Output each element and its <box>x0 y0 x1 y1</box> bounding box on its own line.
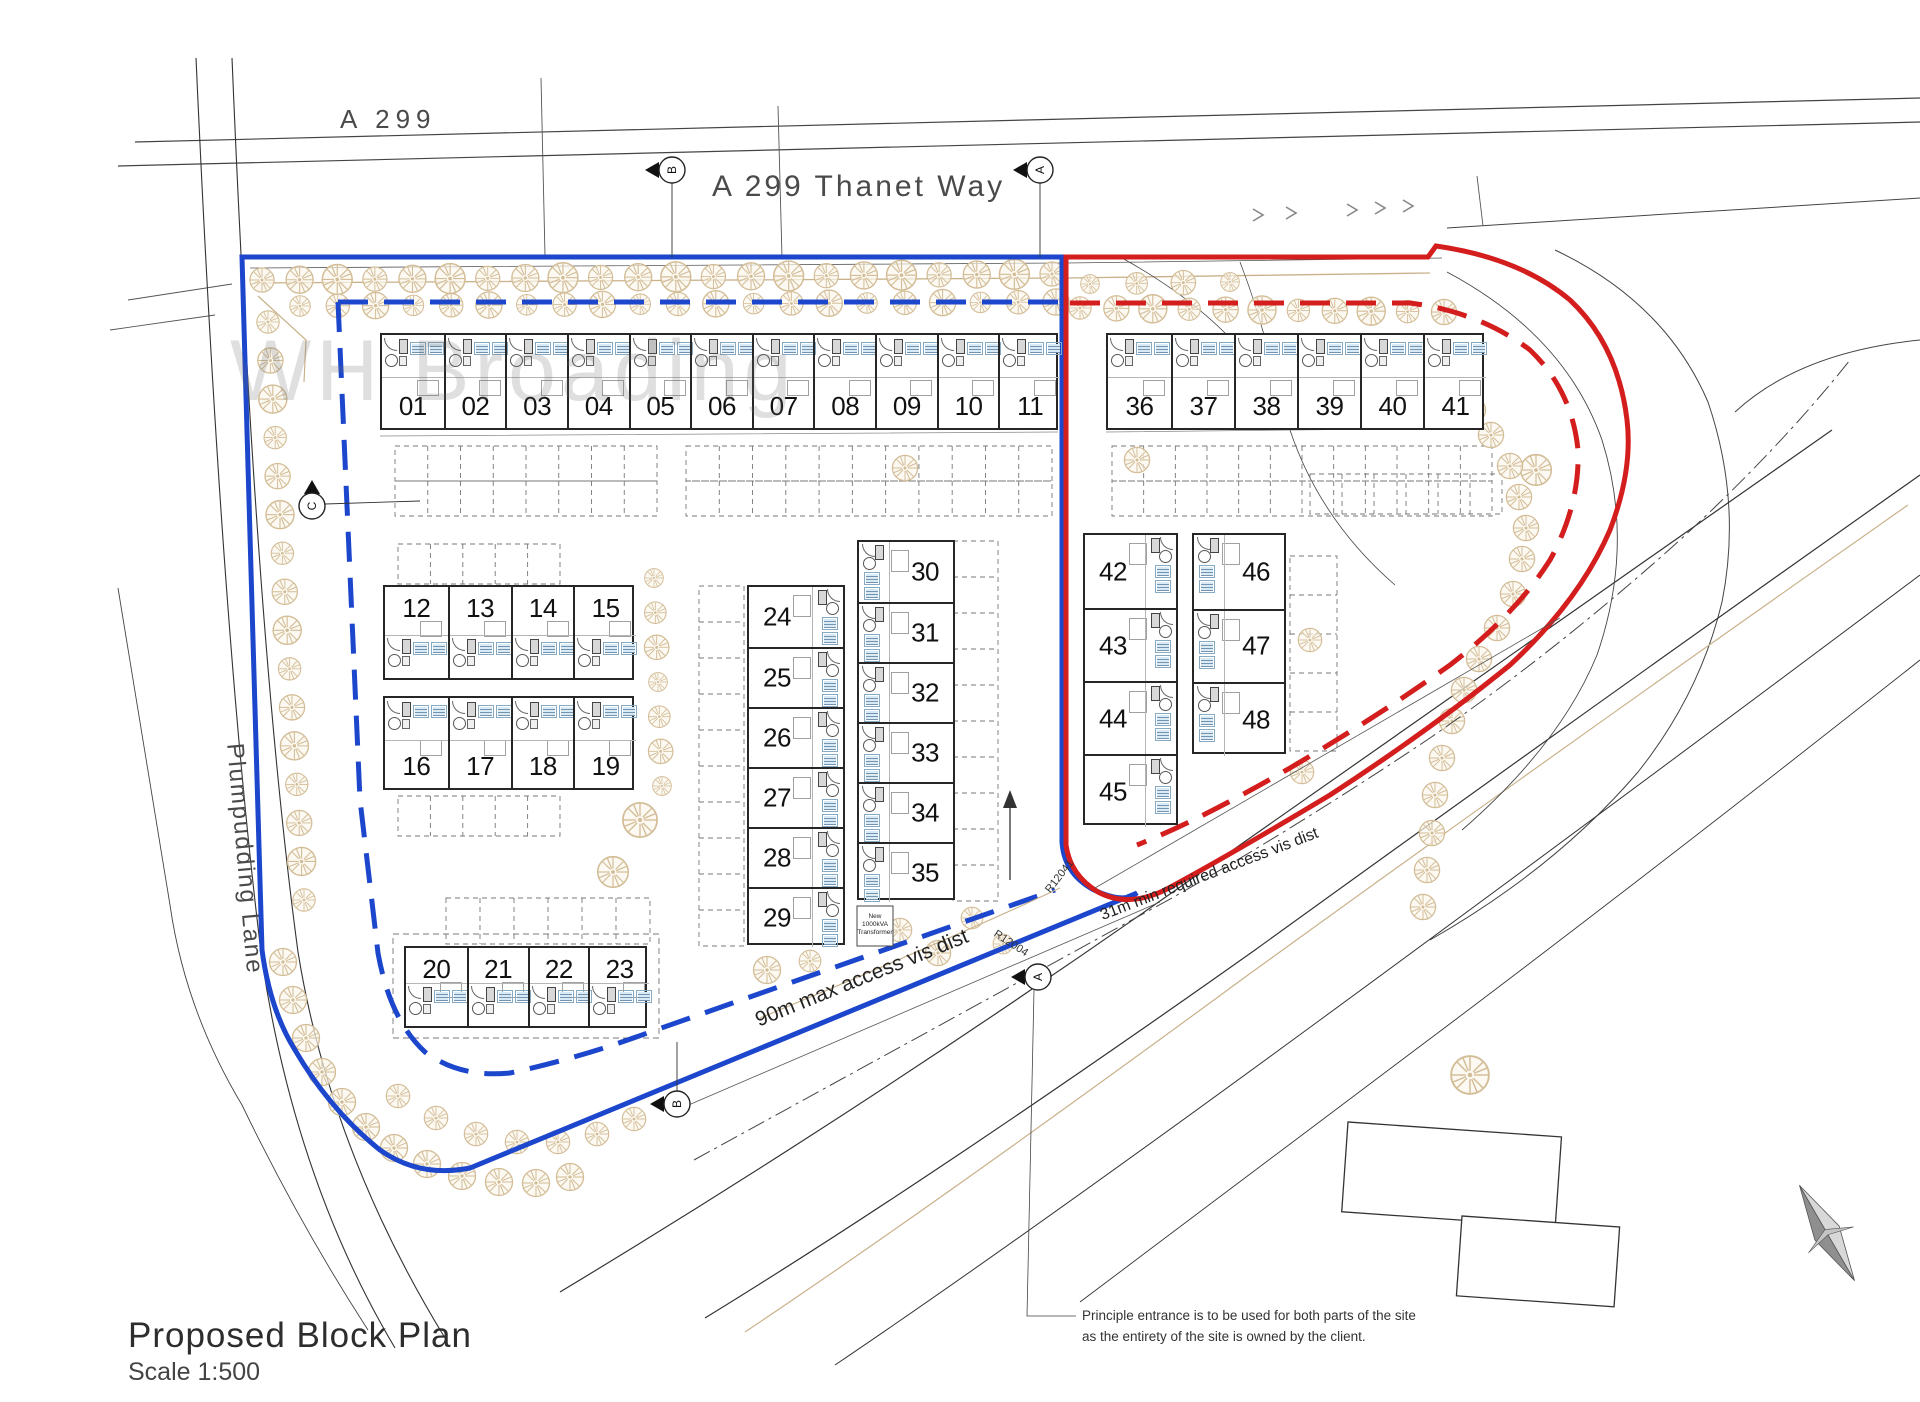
floor-divider <box>1000 377 1060 378</box>
unit-number: 21 <box>484 954 512 985</box>
unit-34: 34 <box>859 782 953 842</box>
unit-spec-label <box>864 889 880 902</box>
door-swing-icon <box>862 726 875 739</box>
wc-icon <box>592 639 601 654</box>
unit-spec-label <box>1155 580 1171 593</box>
door-swing-icon <box>827 891 840 904</box>
door-swing-icon <box>879 338 892 351</box>
marker-c-left-letter: C <box>305 501 319 510</box>
door-swing-icon <box>827 589 840 602</box>
wc-icon <box>486 987 495 1002</box>
terrace-block-row_top_right: 363738394041 <box>1106 333 1484 430</box>
wc-icon <box>818 832 827 847</box>
unit-spec-label <box>822 874 838 887</box>
unit-spec-label <box>864 829 880 842</box>
floor-divider <box>513 635 574 636</box>
unit-spec-label <box>864 814 880 827</box>
unit-spec-label <box>496 705 512 718</box>
floor-divider <box>385 635 448 636</box>
stair-outline <box>1459 380 1481 396</box>
wc-icon <box>547 987 556 1002</box>
shower-icon <box>880 354 893 367</box>
stair-outline <box>1333 380 1355 396</box>
stair-outline <box>1207 380 1229 396</box>
entrance-note: Principle entrance is to be used for bot… <box>1082 1306 1416 1348</box>
unit-spec-label <box>1199 565 1215 578</box>
shower-icon <box>472 1002 485 1015</box>
door-swing-icon <box>1160 758 1173 771</box>
wc-icon <box>875 727 884 742</box>
stair-outline <box>793 717 811 739</box>
unit-spec-label <box>1201 342 1217 355</box>
marker-a-top: A <box>1013 157 1053 257</box>
unit-spec-label <box>1155 801 1171 814</box>
unit-10: 10 <box>937 335 999 428</box>
unit-spec-label <box>822 814 838 827</box>
shower-icon <box>826 602 839 615</box>
unit-38: 38 <box>1234 335 1297 428</box>
wc-icon <box>423 987 432 1002</box>
shower-icon <box>826 904 839 917</box>
unit-spec-label <box>822 934 838 947</box>
terrace-block-col_inner_east: 303132333435 <box>857 540 955 900</box>
stair-outline <box>484 740 506 756</box>
wc-icon <box>1253 339 1262 354</box>
stair-outline <box>891 550 909 572</box>
unit-17: 17 <box>448 698 511 788</box>
door-swing-icon <box>1110 338 1123 351</box>
shower-icon <box>1302 354 1315 367</box>
unit-number: 14 <box>529 593 557 624</box>
floor-divider <box>450 740 511 741</box>
shower-icon <box>388 717 401 730</box>
unit-spec-label <box>864 572 880 585</box>
unit-number: 43 <box>1099 630 1127 661</box>
sink-icon <box>1190 356 1198 366</box>
shower-icon <box>1428 354 1441 367</box>
floor-divider <box>812 889 813 947</box>
wc-icon <box>875 667 884 682</box>
unit-spec-label <box>1327 342 1343 355</box>
entrance-note-line1: Principle entrance is to be used for bot… <box>1082 1306 1416 1327</box>
door-swing-icon <box>827 651 840 664</box>
sink-icon <box>486 1004 494 1014</box>
wc-icon <box>467 702 476 717</box>
unit-number: 22 <box>545 954 573 985</box>
unit-spec-label <box>1155 786 1171 799</box>
floor-divider <box>889 664 890 722</box>
unit-spec-label <box>822 754 838 767</box>
shower-icon <box>1159 550 1172 563</box>
unit-39: 39 <box>1297 335 1360 428</box>
unit-13: 13 <box>448 587 511 678</box>
unit-15: 15 <box>573 587 636 678</box>
shower-icon <box>453 654 466 667</box>
unit-spec-label <box>1155 728 1171 741</box>
unit-31: 31 <box>859 602 953 662</box>
floor-divider <box>385 740 448 741</box>
unit-spec-label <box>843 342 859 355</box>
floor-divider <box>815 377 875 378</box>
door-swing-icon <box>827 711 840 724</box>
door-swing-icon <box>862 666 875 679</box>
unit-spec-label <box>413 705 429 718</box>
transformer-label-1: New <box>868 913 881 920</box>
unit-14: 14 <box>511 587 574 678</box>
unit-spec-label <box>431 705 447 718</box>
shower-icon <box>1159 698 1172 711</box>
unit-spec-label <box>1199 714 1215 727</box>
wc-icon <box>530 702 539 717</box>
door-swing-icon <box>817 338 830 351</box>
unit-spec-label <box>413 642 429 655</box>
floor-divider <box>530 983 589 984</box>
unit-44: 44 <box>1085 681 1176 754</box>
floor-divider <box>812 709 813 767</box>
north-arrow-icon <box>1777 1172 1877 1293</box>
shower-icon <box>1111 354 1124 367</box>
wc-icon <box>1210 538 1219 553</box>
door-swing-icon <box>1238 338 1251 351</box>
unit-number: 28 <box>763 843 791 874</box>
unit-spec-label <box>1471 342 1487 355</box>
unit-33: 33 <box>859 722 953 782</box>
road-label-thanet-way: A 299 Thanet Way <box>712 170 1005 204</box>
floor-divider <box>590 983 649 984</box>
unit-spec-label <box>621 642 637 655</box>
unit-41: 41 <box>1423 335 1486 428</box>
unit-spec-label <box>621 705 637 718</box>
floor-divider <box>812 649 813 707</box>
shower-icon <box>593 1002 606 1015</box>
unit-number: 33 <box>911 738 939 769</box>
road-label-a299: A 299 <box>340 104 437 135</box>
floor-divider <box>1145 610 1146 681</box>
door-swing-icon <box>408 986 421 999</box>
shower-icon <box>516 654 529 667</box>
unit-spec-label <box>1219 342 1235 355</box>
shower-icon <box>388 654 401 667</box>
entrance-note-line2: as the entirety of the site is owned by … <box>1082 1327 1416 1348</box>
access-centreline <box>677 360 1850 1160</box>
shower-icon <box>826 724 839 737</box>
shower-icon <box>818 354 831 367</box>
unit-spec-label <box>541 642 557 655</box>
unit-spec-label <box>478 705 494 718</box>
unit-spec-label <box>822 859 838 872</box>
drawing-title: Proposed Block Plan <box>128 1316 472 1356</box>
floor-divider <box>889 784 890 842</box>
sink-icon <box>467 719 475 729</box>
door-swing-icon <box>1002 338 1015 351</box>
sink-icon <box>956 356 964 366</box>
stair-outline <box>891 612 909 634</box>
floor-divider <box>889 844 890 902</box>
wc-icon <box>1151 686 1160 701</box>
unit-45: 45 <box>1085 754 1176 827</box>
unit-number: 32 <box>911 678 939 709</box>
stair-outline <box>793 595 811 617</box>
door-swing-icon <box>515 638 528 651</box>
floor-divider <box>1224 611 1225 683</box>
sink-icon <box>1379 356 1387 366</box>
unit-spec-label <box>864 769 880 782</box>
unit-spec-label <box>864 694 880 707</box>
floor-divider <box>450 635 511 636</box>
unit-28: 28 <box>749 827 843 887</box>
unit-spec-label <box>1390 342 1406 355</box>
unit-spec-label <box>1408 342 1424 355</box>
floor-divider <box>1299 377 1360 378</box>
shower-icon <box>826 664 839 677</box>
unit-20: 20 <box>406 948 467 1026</box>
door-swing-icon <box>862 606 875 619</box>
marker-c-left: C <box>299 480 420 519</box>
stair-outline <box>891 672 909 694</box>
unit-number: 26 <box>763 723 791 754</box>
door-swing-icon <box>387 638 400 651</box>
wc-icon <box>875 847 884 862</box>
shower-icon <box>1176 354 1189 367</box>
unit-number: 12 <box>402 593 430 624</box>
sink-icon <box>423 1004 431 1014</box>
unit-spec-label <box>1154 342 1170 355</box>
sink-icon <box>1316 356 1324 366</box>
floor-divider <box>1145 756 1146 827</box>
site-plan-drawing: New 1000kVA Transformer B A C A <box>0 0 1920 1402</box>
wc-icon <box>1442 339 1451 354</box>
floor-divider <box>575 635 636 636</box>
terrace-block-col_inner_west: 242526272829 <box>747 585 845 945</box>
unit-spec-label <box>822 617 838 630</box>
unit-35: 35 <box>859 842 953 902</box>
unit-spec-label <box>1155 713 1171 726</box>
unit-30: 30 <box>859 542 953 602</box>
existing-buildings <box>1342 1122 1620 1307</box>
door-swing-icon <box>862 846 875 859</box>
unit-spec-label <box>603 705 619 718</box>
floor-divider <box>1145 535 1146 608</box>
door-swing-icon <box>862 786 875 799</box>
wc-icon <box>1151 538 1160 553</box>
unit-spec-label <box>1046 342 1062 355</box>
floor-divider <box>575 740 636 741</box>
wc-icon <box>894 339 903 354</box>
unit-spec-label <box>1028 342 1044 355</box>
door-swing-icon <box>452 638 465 651</box>
door-swing-icon <box>941 338 954 351</box>
wc-icon <box>1379 339 1388 354</box>
stair-outline <box>1034 380 1056 396</box>
unit-12: 12 <box>385 587 448 678</box>
floor-divider <box>1145 683 1146 754</box>
stair-outline <box>849 380 871 396</box>
wc-icon <box>607 987 616 1002</box>
shower-icon <box>533 1002 546 1015</box>
wc-icon <box>467 639 476 654</box>
transformer-box: New 1000kVA Transformer <box>857 906 893 946</box>
door-swing-icon <box>471 986 484 999</box>
unit-spec-label <box>1199 641 1215 654</box>
transformer-label-3: Transformer <box>857 929 893 936</box>
wc-icon <box>875 545 884 560</box>
unit-number: 47 <box>1242 631 1270 662</box>
wc-icon <box>1151 759 1160 774</box>
sink-icon <box>530 719 538 729</box>
shower-icon <box>826 844 839 857</box>
door-swing-icon <box>1160 612 1173 625</box>
sink-icon <box>607 1004 615 1014</box>
door-swing-icon <box>387 701 400 714</box>
unit-number: 13 <box>466 593 494 624</box>
stair-outline <box>793 897 811 919</box>
stair-outline <box>793 657 811 679</box>
block-plan-canvas: New 1000kVA Transformer B A C A <box>0 0 1920 1402</box>
shower-icon <box>942 354 955 367</box>
unit-number: 27 <box>763 783 791 814</box>
wc-icon <box>818 590 827 605</box>
door-swing-icon <box>532 986 545 999</box>
unit-27: 27 <box>749 767 843 827</box>
door-swing-icon <box>577 638 590 651</box>
unit-spec-label <box>822 739 838 752</box>
unit-spec-label <box>618 990 634 1003</box>
unit-spec-label <box>822 632 838 645</box>
floor-divider <box>513 740 574 741</box>
shower-icon <box>516 717 529 730</box>
terrace-block-col_east_a: 42434445 <box>1083 533 1178 825</box>
unit-09: 09 <box>875 335 937 428</box>
unit-spec-label <box>496 642 512 655</box>
unit-spec-label <box>864 874 880 887</box>
sink-icon <box>547 1004 555 1014</box>
unit-11: 11 <box>998 335 1060 428</box>
floor-divider <box>469 983 528 984</box>
unit-21: 21 <box>467 948 528 1026</box>
terrace-block-block_mid_upper: 12131415 <box>383 585 634 680</box>
unit-spec-label <box>822 679 838 692</box>
wc-icon <box>875 787 884 802</box>
wc-icon <box>875 607 884 622</box>
unit-19: 19 <box>573 698 636 788</box>
wc-icon <box>1017 339 1026 354</box>
terrace-block-col_east_b: 464748 <box>1192 533 1286 754</box>
floor-divider <box>812 829 813 887</box>
door-swing-icon <box>827 771 840 784</box>
stair-outline <box>910 380 932 396</box>
marker-b-top-letter: B <box>665 166 679 174</box>
shower-icon <box>578 654 591 667</box>
terrace-block-block_bottom: 20212223 <box>404 946 647 1028</box>
unit-spec-label <box>541 705 557 718</box>
unit-spec-label <box>822 919 838 932</box>
unit-47: 47 <box>1194 609 1284 683</box>
existing-roads <box>110 58 1920 1365</box>
unit-spec-label <box>452 990 468 1003</box>
unit-number: 31 <box>911 618 939 649</box>
unit-number: 46 <box>1242 556 1270 587</box>
stair-outline <box>891 852 909 874</box>
unit-number: 48 <box>1242 705 1270 736</box>
unit-32: 32 <box>859 662 953 722</box>
door-swing-icon <box>1427 338 1440 351</box>
unit-spec-label <box>822 694 838 707</box>
wc-icon <box>1151 613 1160 628</box>
door-swing-icon <box>1160 685 1173 698</box>
unit-spec-label <box>636 990 652 1003</box>
door-swing-icon <box>1364 338 1377 351</box>
unit-spec-label <box>864 754 880 767</box>
wc-icon <box>818 712 827 727</box>
unit-25: 25 <box>749 647 843 707</box>
wc-icon <box>956 339 965 354</box>
unit-number: 42 <box>1099 556 1127 587</box>
entrance-arrow <box>1003 790 1017 880</box>
shower-icon <box>1239 354 1252 367</box>
unit-number: 20 <box>422 954 450 985</box>
unit-number: 45 <box>1099 776 1127 807</box>
sink-icon <box>1125 356 1133 366</box>
unit-48: 48 <box>1194 682 1284 756</box>
shower-icon <box>578 717 591 730</box>
unit-spec-label <box>603 642 619 655</box>
unit-spec-label <box>1282 342 1298 355</box>
sink-icon <box>592 656 600 666</box>
unit-spec-label <box>864 709 880 722</box>
unit-26: 26 <box>749 707 843 767</box>
floor-divider <box>889 604 890 662</box>
floor-divider <box>1236 377 1297 378</box>
unit-spec-label <box>431 642 447 655</box>
unit-36: 36 <box>1108 335 1171 428</box>
sink-icon <box>1253 356 1261 366</box>
sink-icon <box>402 656 410 666</box>
door-swing-icon <box>592 986 605 999</box>
wc-icon <box>530 639 539 654</box>
wc-icon <box>1190 339 1199 354</box>
unit-spec-label <box>967 342 983 355</box>
wc-icon <box>818 772 827 787</box>
door-swing-icon <box>1160 537 1173 550</box>
transformer-label-2: 1000kVA <box>862 921 889 928</box>
unit-spec-label <box>1345 342 1361 355</box>
stair-outline <box>891 792 909 814</box>
wc-icon <box>402 639 411 654</box>
wc-icon <box>1316 339 1325 354</box>
sink-icon <box>530 656 538 666</box>
unit-spec-label <box>497 990 513 1003</box>
floor-divider <box>1425 377 1486 378</box>
sink-icon <box>1442 356 1450 366</box>
unit-spec-label <box>905 342 921 355</box>
wc-icon <box>818 652 827 667</box>
watermark-text: WH Broading <box>230 322 796 421</box>
floor-divider <box>1224 684 1225 756</box>
sink-icon <box>592 719 600 729</box>
shower-icon <box>453 717 466 730</box>
floor-divider <box>812 769 813 827</box>
unit-spec-label <box>434 990 450 1003</box>
shower-icon <box>826 784 839 797</box>
unit-spec-label <box>864 649 880 662</box>
sink-icon <box>894 356 902 366</box>
floor-divider <box>877 377 937 378</box>
unit-number: 25 <box>763 663 791 694</box>
sink-icon <box>832 356 840 366</box>
door-swing-icon <box>1197 537 1210 550</box>
marker-a-top-letter: A <box>1033 166 1047 174</box>
unit-spec-label <box>559 642 575 655</box>
